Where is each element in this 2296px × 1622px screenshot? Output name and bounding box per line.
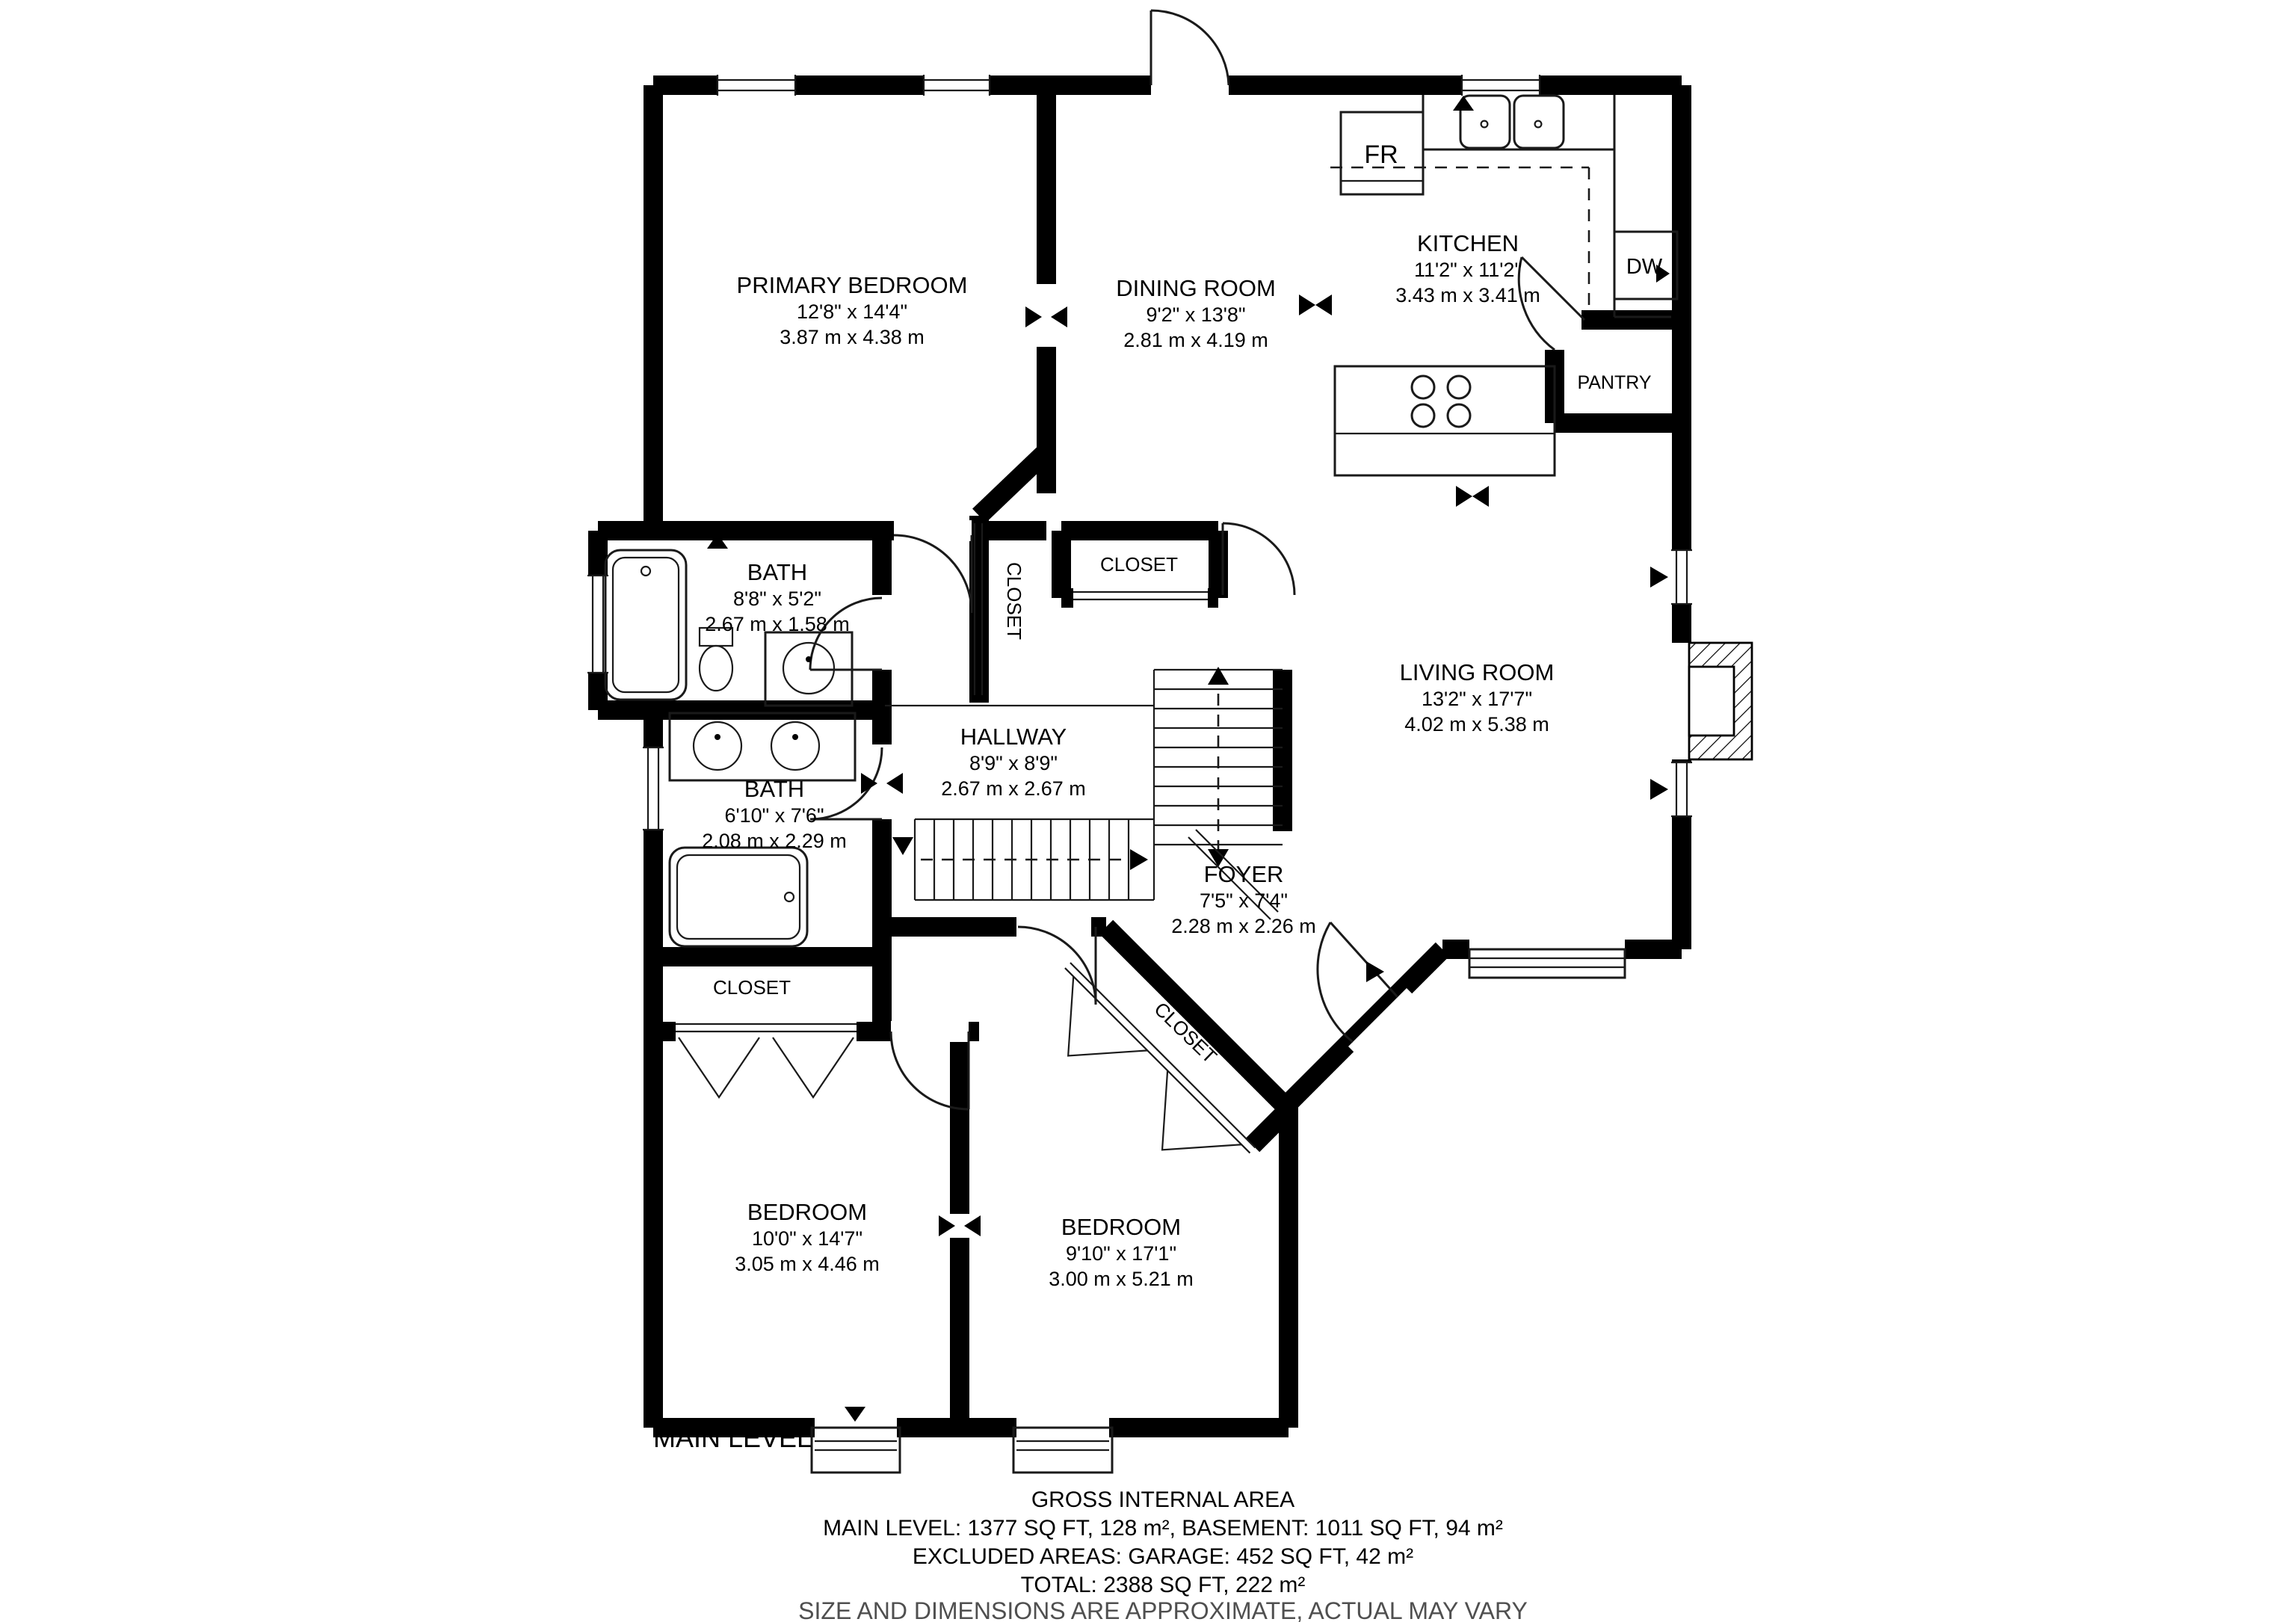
- floor-plan-page: PRIMARY BEDROOM 12'8" x 14'4" 3.87 m x 4…: [0, 0, 2296, 1622]
- room-metric: 2.67 m x 1.58 m: [705, 613, 850, 635]
- room-name: PRIMARY BEDROOM: [737, 272, 968, 298]
- room-imperial: 12'8" x 14'4": [797, 300, 907, 323]
- primary-suite-door: [894, 535, 972, 613]
- room-label-bedroom2: BEDROOM 9'10" x 17'1" 3.00 m x 5.21 m: [1049, 1214, 1194, 1290]
- room-label-kitchen: KITCHEN 11'2" x 11'2" 3.43 m x 3.41 m: [1395, 230, 1540, 306]
- floor-plan-svg: PRIMARY BEDROOM 12'8" x 14'4" 3.87 m x 4…: [0, 0, 2296, 1622]
- room-name: HALLWAY: [960, 724, 1067, 750]
- kitchen-sink-right: [1514, 96, 1564, 148]
- room-name: LIVING ROOM: [1400, 659, 1555, 685]
- cooktop-burner: [1412, 376, 1434, 398]
- room-label-bath2: BATH 6'10" x 7'6" 2.08 m x 2.29 m: [702, 776, 847, 852]
- pantry-label: PANTRY: [1577, 372, 1651, 393]
- room-metric: 2.28 m x 2.26 m: [1171, 915, 1316, 937]
- cooktop-burner: [1412, 404, 1434, 427]
- footer-total-line: TOTAL: 2388 SQ FT, 222 m²: [1021, 1573, 1306, 1597]
- room-name: BEDROOM: [1061, 1214, 1181, 1240]
- room-imperial: 8'9" x 8'9": [969, 752, 1058, 774]
- kitchen-island: [1335, 366, 1555, 475]
- stairs-down: [892, 819, 1154, 900]
- room-name: BATH: [747, 559, 807, 585]
- closet-label-hall: CLOSET: [1100, 553, 1178, 576]
- room-name: DINING ROOM: [1116, 275, 1276, 301]
- footer-area-summary: GROSS INTERNAL AREA MAIN LEVEL: 1377 SQ …: [798, 1487, 1528, 1622]
- closet-label-primary: CLOSET: [1003, 562, 1025, 640]
- dishwasher-label: DW: [1626, 255, 1663, 279]
- room-name: KITCHEN: [1417, 230, 1519, 256]
- room-label-dining-room: DINING ROOM 9'2" x 13'8" 2.81 m x 4.19 m: [1116, 275, 1276, 351]
- room-imperial: 10'0" x 14'7": [752, 1227, 862, 1250]
- bathtub: [605, 550, 686, 700]
- room-metric: 4.02 m x 5.38 m: [1404, 713, 1549, 736]
- room-name: FOYER: [1204, 861, 1284, 887]
- fridge-label: FR: [1364, 141, 1398, 169]
- toilet-bowl: [700, 646, 732, 691]
- fireplace: [1689, 643, 1752, 759]
- room-label-bath1: BATH 8'8" x 5'2" 2.67 m x 1.58 m: [705, 559, 850, 635]
- room-metric: 3.05 m x 4.46 m: [735, 1253, 880, 1275]
- double-vanity: [670, 713, 855, 780]
- closet-label-bedroom1: CLOSET: [713, 976, 791, 999]
- bedroom2-door: [1018, 927, 1096, 1005]
- exterior-door-top: [1151, 10, 1229, 85]
- room-label-hallway: HALLWAY 8'9" x 8'9" 2.67 m x 2.67 m: [941, 724, 1086, 800]
- footer-heading: GROSS INTERNAL AREA: [1031, 1487, 1294, 1512]
- room-imperial: 9'2" x 13'8": [1146, 303, 1245, 326]
- room-label-bedroom1: BEDROOM 10'0" x 14'7" 3.05 m x 4.46 m: [735, 1199, 880, 1275]
- room-imperial: 7'5" x 7'4": [1200, 889, 1288, 912]
- room-name: BATH: [744, 776, 804, 802]
- room-labels: PRIMARY BEDROOM 12'8" x 14'4" 3.87 m x 4…: [702, 230, 1554, 1290]
- cooktop-burner: [1448, 404, 1470, 427]
- room-imperial: 11'2" x 11'2": [1414, 259, 1522, 281]
- room-name: BEDROOM: [747, 1199, 867, 1225]
- room-metric: 2.08 m x 2.29 m: [702, 830, 847, 852]
- room-metric: 2.81 m x 4.19 m: [1123, 329, 1268, 351]
- bathtub: [670, 848, 807, 946]
- room-metric: 3.87 m x 4.38 m: [780, 326, 925, 348]
- room-label-living-room: LIVING ROOM 13'2" x 17'7" 4.02 m x 5.38 …: [1400, 659, 1555, 736]
- room-imperial: 9'10" x 17'1": [1066, 1242, 1176, 1265]
- room-imperial: 6'10" x 7'6": [724, 804, 824, 827]
- footer-main-line: MAIN LEVEL: 1377 SQ FT, 128 m², BASEMENT…: [823, 1516, 1503, 1541]
- room-label-primary-bedroom: PRIMARY BEDROOM 12'8" x 14'4" 3.87 m x 4…: [737, 272, 968, 348]
- room-imperial: 13'2" x 17'7": [1422, 688, 1532, 710]
- room-label-foyer: FOYER 7'5" x 7'4" 2.28 m x 2.26 m: [1171, 861, 1316, 937]
- footer-disclaimer: SIZE AND DIMENSIONS ARE APPROXIMATE, ACT…: [798, 1597, 1528, 1622]
- room-metric: 3.43 m x 3.41 m: [1395, 284, 1540, 306]
- footer-excluded-line: EXCLUDED AREAS: GARAGE: 452 SQ FT, 42 m²: [913, 1544, 1413, 1569]
- bedroom2-closet-bifold: [1022, 963, 1255, 1195]
- room-imperial: 8'8" x 5'2": [733, 588, 821, 610]
- room-metric: 2.67 m x 2.67 m: [941, 777, 1086, 800]
- room-metric: 3.00 m x 5.21 m: [1049, 1268, 1194, 1290]
- cooktop-burner: [1448, 376, 1470, 398]
- hall-closet-door: [1223, 523, 1294, 595]
- level-label: MAIN LEVEL: [653, 1422, 812, 1453]
- hall-closet-slider: [1073, 592, 1208, 599]
